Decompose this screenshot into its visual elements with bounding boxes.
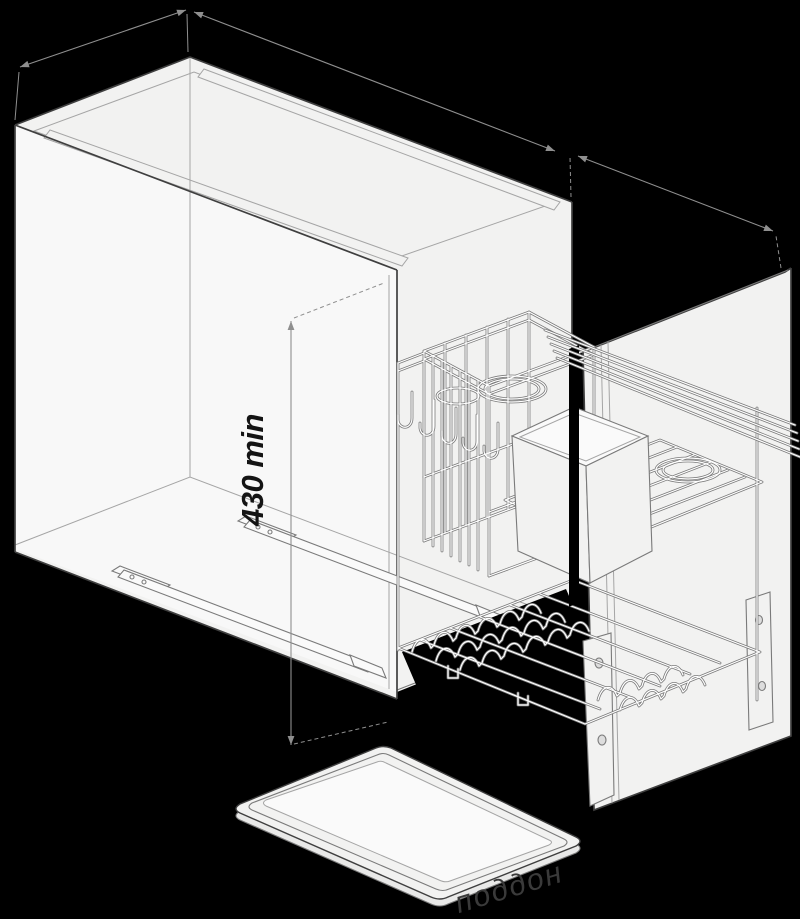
carcass-panel-gap — [569, 345, 579, 607]
height-dimension-label: 430 min — [235, 414, 270, 527]
cutlery-bin — [512, 407, 652, 583]
diagram-stage: 430 min поддон — [0, 0, 800, 919]
dimension-panel-top — [578, 156, 781, 268]
cabinet-pullout-diagram: 430 min поддон — [0, 0, 800, 919]
